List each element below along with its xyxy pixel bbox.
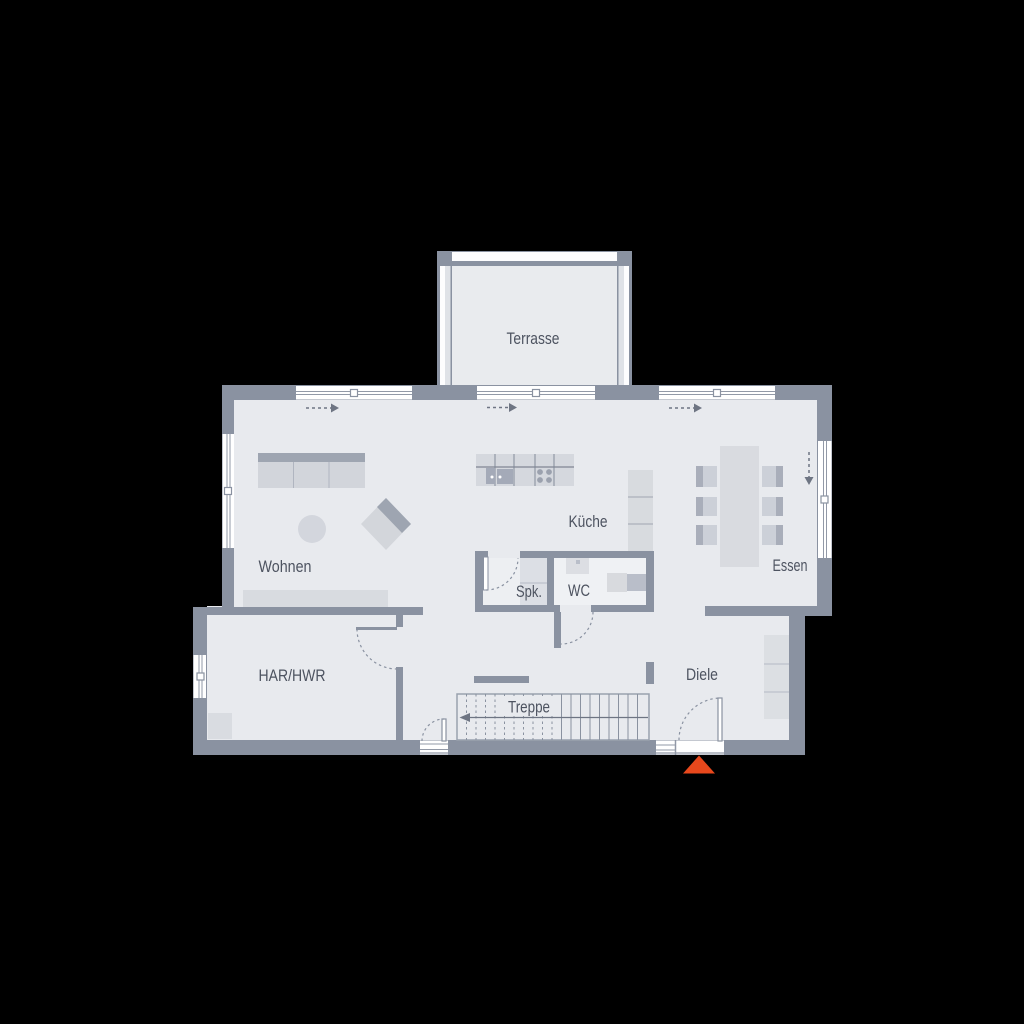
- svg-text:Terrasse: Terrasse: [507, 329, 560, 348]
- svg-text:Essen: Essen: [773, 556, 808, 575]
- svg-text:HAR/HWR: HAR/HWR: [259, 666, 326, 685]
- svg-text:Spk.: Spk.: [516, 582, 542, 601]
- svg-text:Küche: Küche: [569, 512, 608, 531]
- svg-text:Diele: Diele: [686, 665, 718, 684]
- svg-text:WC: WC: [568, 581, 590, 600]
- svg-text:Treppe: Treppe: [508, 698, 550, 717]
- svg-text:Wohnen: Wohnen: [259, 557, 312, 576]
